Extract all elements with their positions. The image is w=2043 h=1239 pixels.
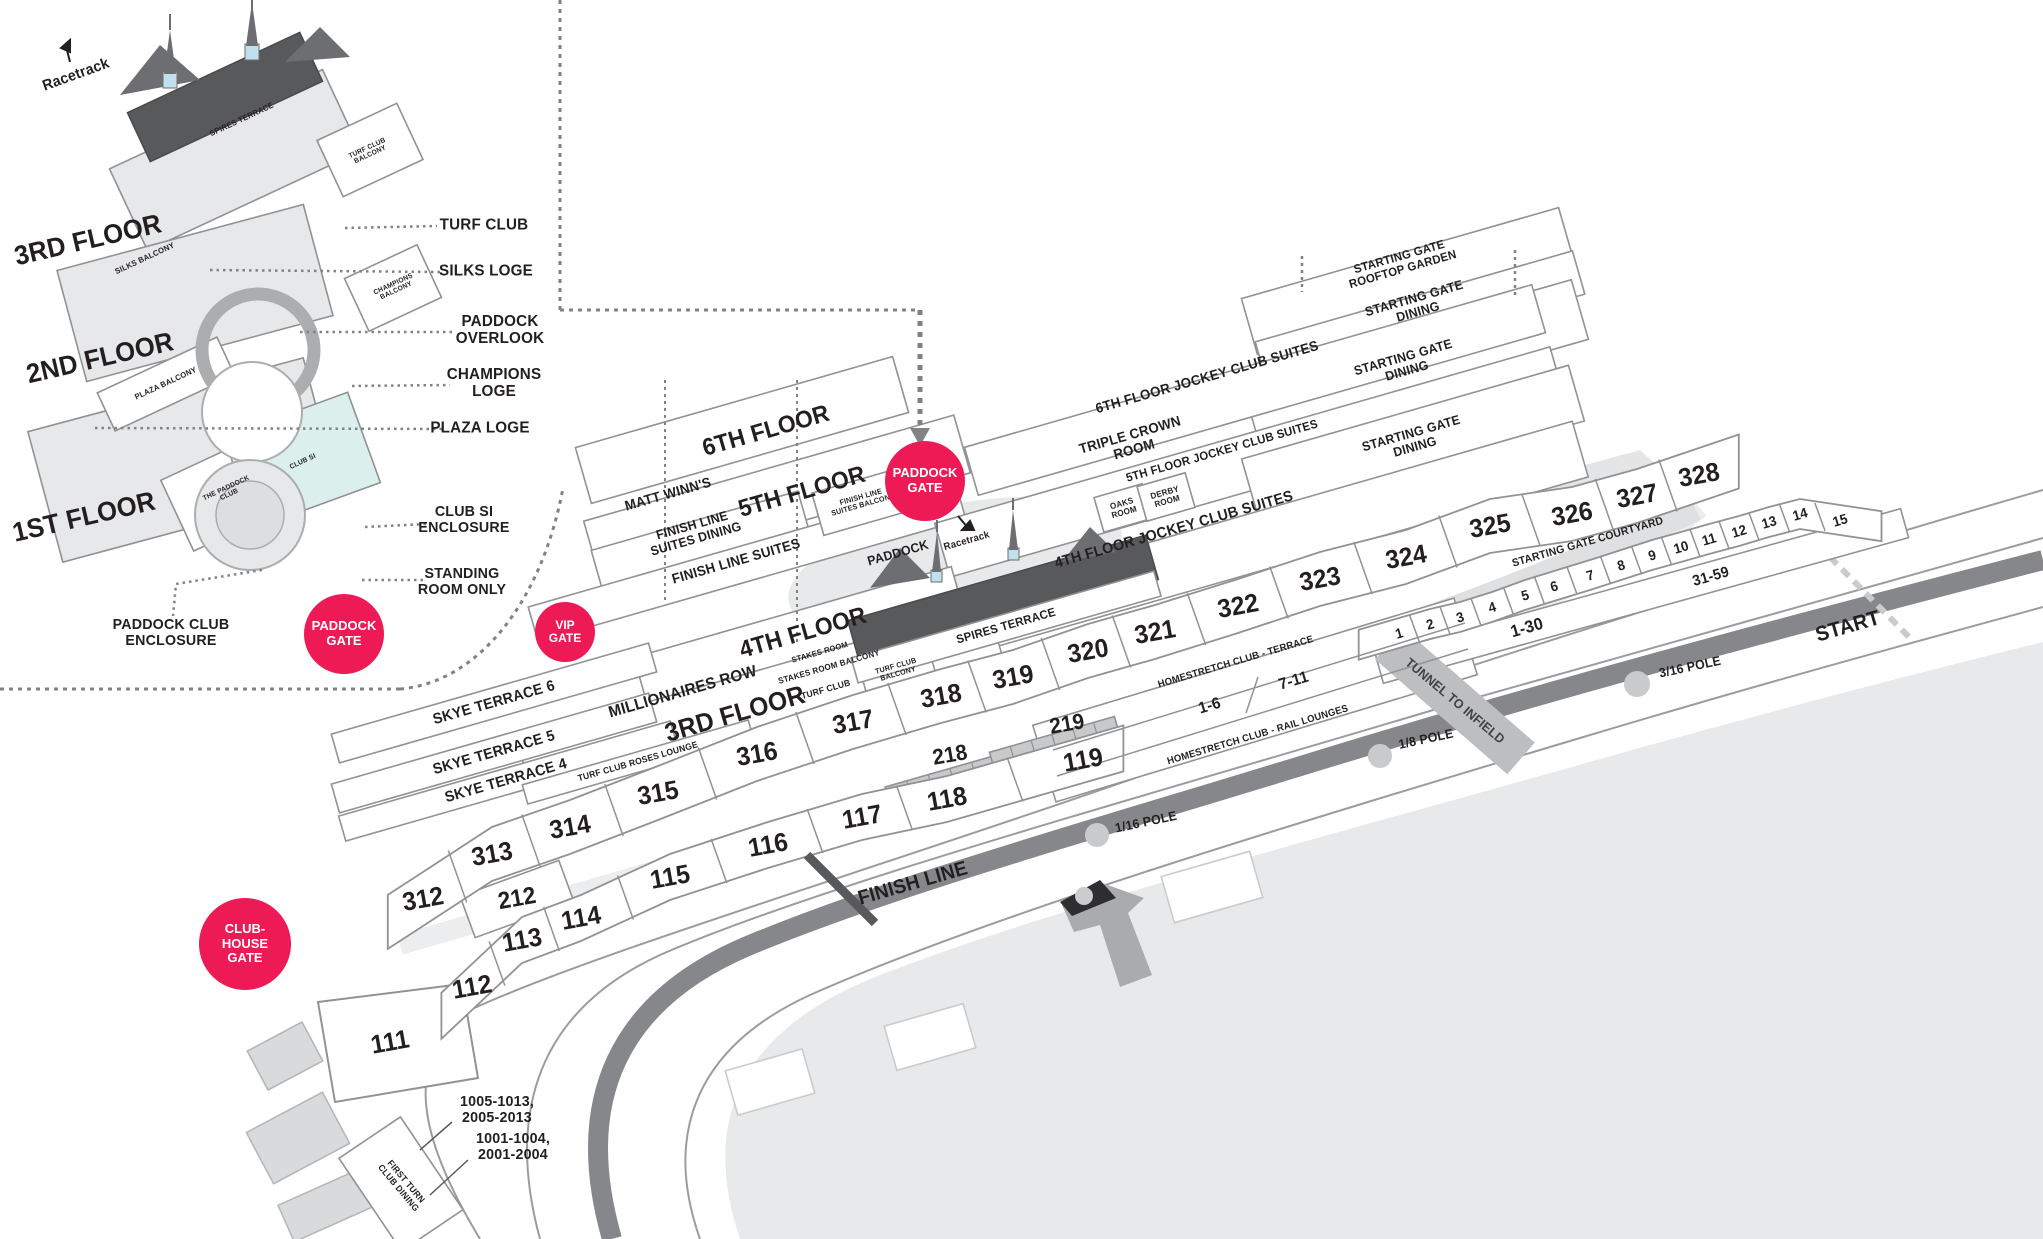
section-9[interactable]: 9 xyxy=(1646,546,1658,563)
section-118[interactable]: 118 xyxy=(925,780,970,817)
matt-winns-label: MATT WINN'S xyxy=(623,475,713,514)
section-7[interactable]: 7 xyxy=(1584,566,1596,583)
standing-room-only-callout: STANDING ROOM ONLY xyxy=(418,566,506,598)
pole-1-16-label: 1/16 POLE xyxy=(1114,809,1178,836)
starting-gate-dining-4f-label: STARTING GATE DINING xyxy=(1360,413,1465,467)
section-212[interactable]: 212 xyxy=(496,882,538,916)
spires-terrace-label-main: SPIRES TERRACE xyxy=(955,606,1057,647)
derby-room-label: DERBY ROOM xyxy=(1149,484,1182,509)
silks-loge-callout: SILKS LOGE xyxy=(439,264,533,281)
section-113[interactable]: 113 xyxy=(500,921,545,958)
section-1[interactable]: 1 xyxy=(1393,624,1405,641)
plaza-loge-callout: PLAZA LOGE xyxy=(430,421,529,438)
racetrack-label-main: Racetrack xyxy=(943,530,991,553)
club-si-enclosure-callout: CLUB SI ENCLOSURE xyxy=(418,504,509,536)
section-218[interactable]: 218 xyxy=(931,739,970,771)
section-5[interactable]: 5 xyxy=(1519,586,1531,603)
pole-1-8-label: 1/8 POLE xyxy=(1397,726,1454,751)
turf-club-roses-lounge-label: TURF CLUB ROSES LOUNGE xyxy=(577,740,699,783)
section-320[interactable]: 320 xyxy=(1065,632,1111,670)
turf-club-callout: TURF CLUB xyxy=(440,218,529,235)
homestretch-1-6-label[interactable]: 1-6 xyxy=(1197,696,1223,719)
turf-club-label-main: TURF CLUB xyxy=(800,678,851,701)
club-si-label: CLUB SI xyxy=(289,453,317,472)
section-318[interactable]: 318 xyxy=(918,677,964,715)
section-219[interactable]: 219 xyxy=(1048,708,1087,740)
section-119[interactable]: 119 xyxy=(1061,741,1106,778)
section-328[interactable]: 328 xyxy=(1676,456,1722,494)
section-327[interactable]: 327 xyxy=(1614,477,1660,515)
label-layer: RacetrackSPIRES TERRACETURF CLUB BALCONY… xyxy=(0,0,2043,1239)
section-313[interactable]: 313 xyxy=(469,835,515,873)
section-315[interactable]: 315 xyxy=(635,774,681,812)
first-turn-club-dining-label: FIRST TURN CLUB DINING xyxy=(376,1157,428,1214)
finish-line-label: FINISH LINE xyxy=(856,858,970,909)
section-6[interactable]: 6 xyxy=(1548,577,1560,594)
clubhouse-gate[interactable]: CLUB- HOUSE GATE xyxy=(199,898,291,990)
section-12[interactable]: 12 xyxy=(1730,521,1749,540)
section-112[interactable]: 112 xyxy=(450,968,495,1005)
section-319[interactable]: 319 xyxy=(990,658,1036,696)
champions-balcony-label: CHAMPIONS BALCONY xyxy=(373,272,418,303)
section-15[interactable]: 15 xyxy=(1831,510,1850,529)
paddock-club-enclosure-callout: PADDOCK CLUB ENCLOSURE xyxy=(113,617,230,649)
jockey-club-suites-6f-label: 6TH FLOOR JOCKEY CLUB SUITES xyxy=(1094,338,1320,416)
suites-1001-2004-label[interactable]: 1001-1004, 2001-2004 xyxy=(476,1131,550,1163)
section-116[interactable]: 116 xyxy=(746,826,791,863)
section-3[interactable]: 3 xyxy=(1454,608,1466,625)
homestretch-club-rail-lounges-label: HOMESTRETCH CLUB - RAIL LOUNGES xyxy=(1166,704,1350,768)
finish-line-suites-dining-label: FINISH LINE SUITES DINING xyxy=(645,506,743,558)
section-323[interactable]: 323 xyxy=(1297,560,1343,598)
section-326[interactable]: 326 xyxy=(1549,495,1595,533)
section-14[interactable]: 14 xyxy=(1791,504,1810,523)
spires-terrace-label-inset: SPIRES TERRACE xyxy=(209,101,275,138)
section-312[interactable]: 312 xyxy=(400,880,446,918)
section-324[interactable]: 324 xyxy=(1383,538,1429,576)
section-316[interactable]: 316 xyxy=(734,735,780,773)
section-2[interactable]: 2 xyxy=(1424,615,1436,632)
section-317[interactable]: 317 xyxy=(830,703,876,741)
range-31-59-label[interactable]: 31-59 xyxy=(1691,564,1731,590)
paddock-label-main: PADDOCK xyxy=(866,538,930,569)
starting-gate-dining-6f-label: STARTING GATE DINING xyxy=(1363,278,1468,332)
section-115[interactable]: 115 xyxy=(648,858,693,895)
start-label: START xyxy=(1813,607,1883,647)
vip-gate[interactable]: VIP GATE xyxy=(535,602,595,662)
turf-club-balcony-label-inset: TURF CLUB BALCONY xyxy=(348,137,390,167)
skye-terrace-6-label: SKYE TERRACE 6 xyxy=(431,678,557,728)
section-322[interactable]: 322 xyxy=(1215,587,1261,625)
champions-loge-callout: CHAMPIONS LOGE xyxy=(447,367,542,401)
section-4[interactable]: 4 xyxy=(1486,598,1498,615)
paddock-overlook-callout: PADDOCK OVERLOOK xyxy=(456,314,545,348)
section-111[interactable]: 111 xyxy=(368,1023,411,1060)
floor-6-label: 6TH FLOOR xyxy=(700,401,833,462)
plaza-balcony-label: PLAZA BALCONY xyxy=(134,366,198,402)
section-325[interactable]: 325 xyxy=(1467,507,1513,545)
suites-1005-2013-label[interactable]: 1005-1013, 2005-2013 xyxy=(460,1094,534,1126)
homestretch-7-11-label[interactable]: 7-11 xyxy=(1277,670,1311,695)
paddock-gate-main[interactable]: PADDOCK GATE xyxy=(885,441,965,521)
section-11[interactable]: 11 xyxy=(1700,529,1718,548)
section-8[interactable]: 8 xyxy=(1615,556,1627,573)
oaks-room-label: OAKS ROOM xyxy=(1108,496,1138,520)
floor-2-label-inset: 2ND FLOOR xyxy=(24,327,177,389)
section-321[interactable]: 321 xyxy=(1132,613,1178,651)
starting-gate-dining-5f-label: STARTING GATE DINING xyxy=(1352,337,1457,391)
section-114[interactable]: 114 xyxy=(559,899,604,936)
paddock-gate-inset[interactable]: PADDOCK GATE xyxy=(304,594,384,674)
range-1-30-label[interactable]: 1-30 xyxy=(1509,615,1546,641)
the-paddock-club-label: THE PADDOCK CLUB xyxy=(202,475,254,510)
floor-1-label-inset: 1ST FLOOR xyxy=(10,487,158,548)
section-117[interactable]: 117 xyxy=(840,798,885,835)
pole-3-16-label: 3/16 POLE xyxy=(1658,654,1722,681)
racetrack-label-inset: Racetrack xyxy=(40,56,111,95)
seating-map: RacetrackSPIRES TERRACETURF CLUB BALCONY… xyxy=(0,0,2043,1239)
section-314[interactable]: 314 xyxy=(547,808,593,846)
section-10[interactable]: 10 xyxy=(1672,537,1691,556)
turf-club-balcony-label-main: TURF CLUB BALCONY xyxy=(874,657,919,684)
section-13[interactable]: 13 xyxy=(1760,512,1779,531)
